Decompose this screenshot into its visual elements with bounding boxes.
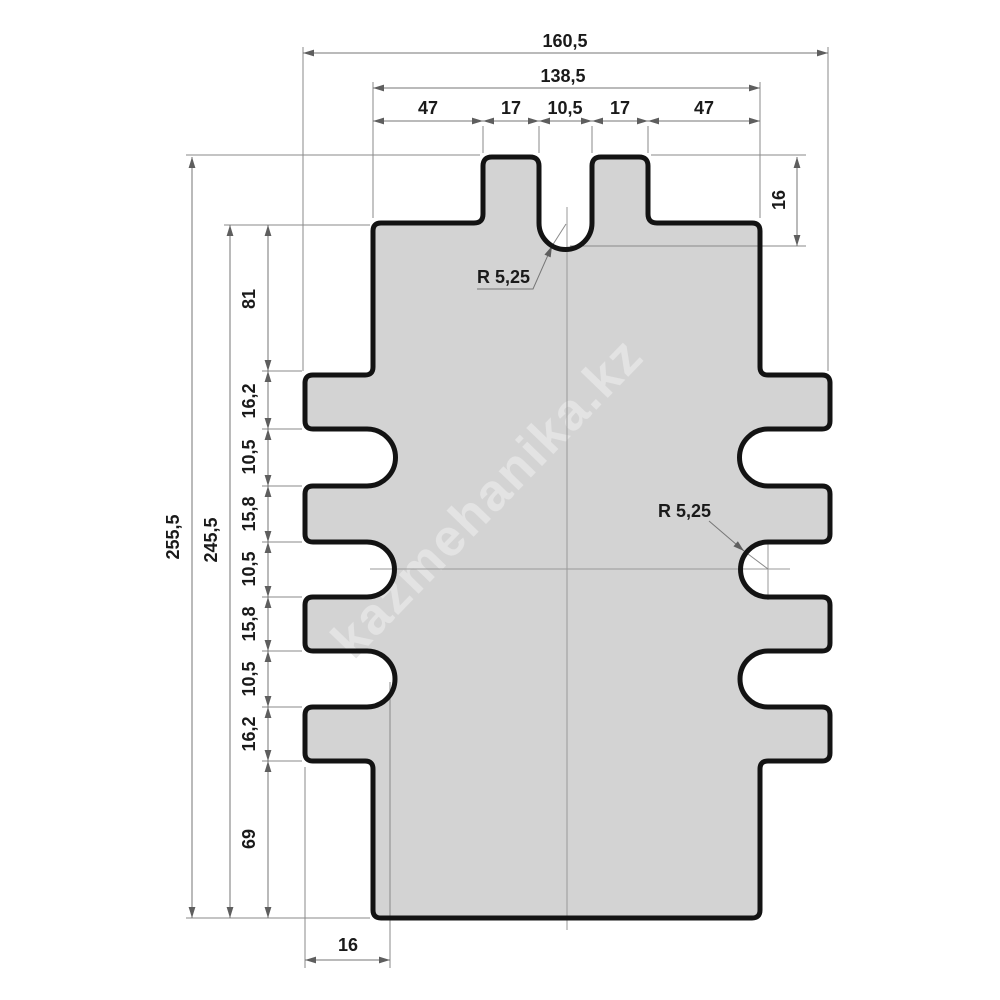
dim-chain-16-2-top: 16,2	[239, 383, 259, 418]
dim-top-body: 138,5	[540, 66, 585, 86]
dim-right-16: 16	[769, 190, 789, 210]
dim-left-overall: 255,5	[163, 514, 183, 559]
dim-top-seg-10-5: 10,5	[547, 98, 582, 118]
dim-top-seg-47-left: 47	[418, 98, 438, 118]
dim-top-seg-47-right: 47	[694, 98, 714, 118]
dim-top-overall: 160,5	[542, 31, 587, 51]
dim-chain-15-8-top: 15,8	[239, 496, 259, 531]
technical-drawing-canvas: kazmehanika.kz	[0, 0, 1000, 1000]
dim-chain-81: 81	[239, 289, 259, 309]
dim-chain-69: 69	[239, 829, 259, 849]
dim-left-body: 245,5	[201, 517, 221, 562]
dim-bottom-16: 16	[338, 935, 358, 955]
dim-top-seg-17-right: 17	[610, 98, 630, 118]
drawing-svg: kazmehanika.kz	[0, 0, 1000, 1000]
dim-chain-10-5-top: 10,5	[239, 439, 259, 474]
dim-chain-16-2-bottom: 16,2	[239, 716, 259, 751]
dim-chain-10-5-mid: 10,5	[239, 551, 259, 586]
dim-chain-15-8-bottom: 15,8	[239, 606, 259, 641]
radius-label-top-notch: R 5,25	[477, 267, 530, 287]
dim-top-seg-17-left: 17	[501, 98, 521, 118]
radius-label-side-notch: R 5,25	[658, 501, 711, 521]
dim-chain-10-5-bottom: 10,5	[239, 661, 259, 696]
